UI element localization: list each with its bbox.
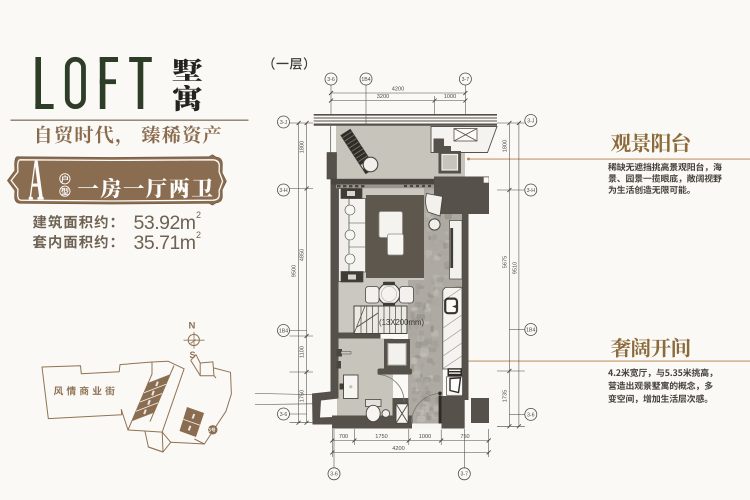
svg-text:750: 750 [460,434,469,440]
svg-text:3-H: 3-H [527,188,536,194]
svg-text:3-6: 3-6 [280,412,288,418]
svg-text:1000: 1000 [419,434,431,440]
svg-text:1100: 1100 [300,346,306,358]
svg-text:(13X200mm): (13X200mm) [379,318,424,327]
svg-text:9510: 9510 [512,262,518,274]
svg-text:1000: 1000 [444,94,456,100]
svg-text:3-7: 3-7 [461,472,469,478]
svg-text:700: 700 [339,434,348,440]
svg-text:1750: 1750 [375,434,387,440]
svg-text:53.92m: 53.92m [134,212,196,234]
svg-text:1800: 1800 [502,140,508,152]
svg-text:9500: 9500 [292,265,298,277]
svg-text:4850: 4850 [300,249,306,261]
svg-text:4200: 4200 [392,87,404,93]
svg-text:2: 2 [196,230,201,240]
svg-text:3-7: 3-7 [462,77,470,83]
svg-text:N: N [189,321,196,332]
svg-text:3-J: 3-J [280,120,288,126]
svg-text:3200: 3200 [377,94,389,100]
svg-text:1800: 1800 [300,141,306,153]
svg-text:35.71m: 35.71m [134,232,196,254]
svg-text:1750: 1750 [300,390,306,402]
svg-text:1B4: 1B4 [361,77,370,83]
svg-text:1B4: 1B4 [526,327,535,333]
svg-text:2: 2 [196,210,201,220]
svg-text:4200: 4200 [392,446,404,452]
svg-text:3-6: 3-6 [527,412,535,418]
svg-text:1B4: 1B4 [279,328,288,334]
svg-text:3-J: 3-J [527,118,535,124]
svg-text:5675: 5675 [502,256,508,268]
svg-text:3-6: 3-6 [330,472,338,478]
svg-text:3-H: 3-H [279,188,288,194]
svg-text:3-6: 3-6 [327,77,335,83]
svg-text:1735: 1735 [502,390,508,402]
